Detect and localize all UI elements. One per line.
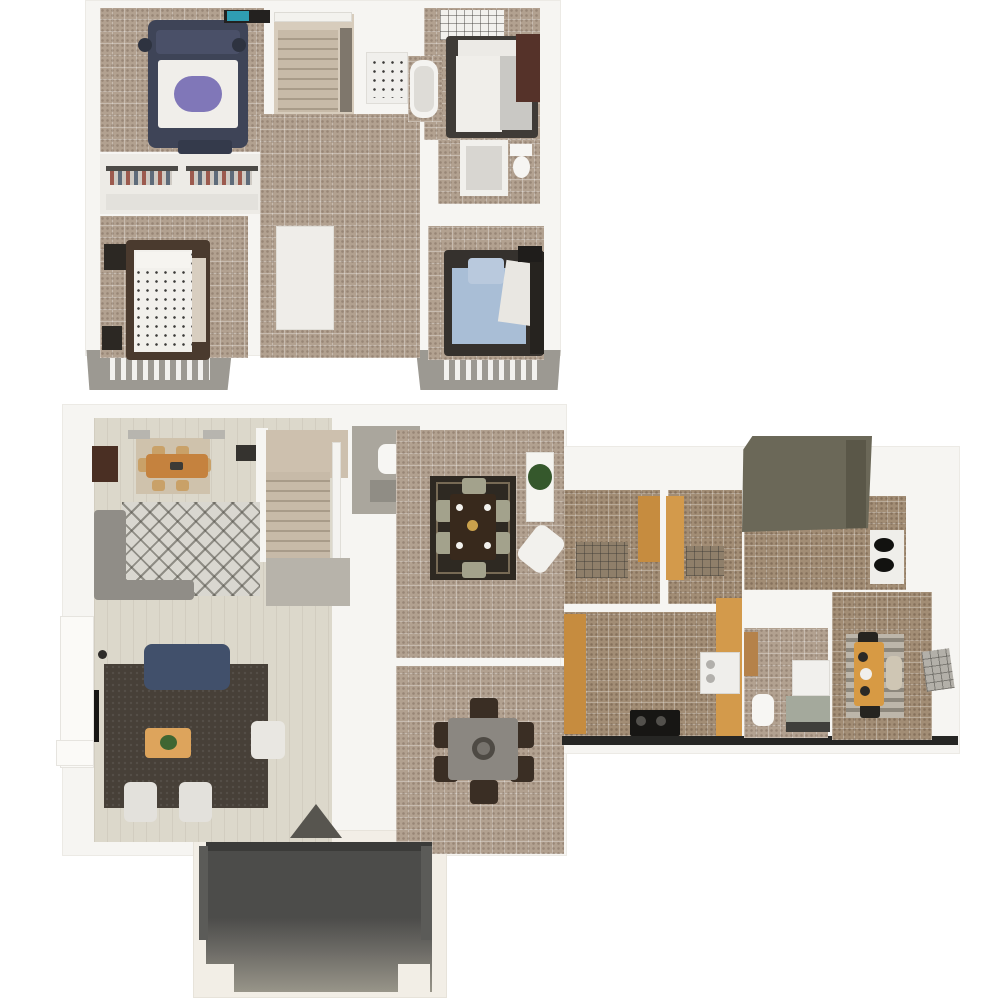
- patio-table-ring-inner: [477, 742, 490, 755]
- master-bed-bench: [178, 140, 232, 154]
- drape-right: [203, 430, 225, 439]
- dining-chair-right-2: [494, 532, 510, 554]
- nook-chair-4: [176, 480, 189, 491]
- wardrobe-2: [666, 496, 684, 580]
- annex-room1-rug: [576, 542, 628, 578]
- master-side-table-right: [232, 38, 246, 52]
- master-bed-pillows: [156, 30, 240, 54]
- armchair-right: [251, 721, 285, 759]
- left-deck-step: [56, 740, 94, 766]
- annex-chair-bottom: [860, 704, 880, 718]
- dining-chair-top: [462, 478, 486, 494]
- stove-coil-2: [706, 674, 715, 683]
- nightstand-top: [104, 244, 126, 270]
- kitchen-counter-left: [564, 614, 586, 734]
- cooktop-burner-2: [656, 716, 666, 726]
- plate-3: [456, 542, 463, 549]
- room3-pot-1: [874, 538, 894, 552]
- blue-bed-headboard: [530, 252, 544, 354]
- floorplan-canvas: [0, 0, 989, 1000]
- master-side-table-left: [138, 38, 152, 52]
- doormat: [921, 648, 954, 692]
- bath-wood-cabinet: [744, 632, 758, 676]
- master-tv-screen: [227, 11, 249, 21]
- drape-left: [128, 430, 150, 439]
- nightstand-bottom: [102, 326, 122, 350]
- annex-toilet: [752, 694, 774, 726]
- kitchen-stove-white: [700, 652, 740, 694]
- annex-room2-rug: [686, 546, 724, 576]
- closet-shelf: [106, 194, 258, 210]
- wardrobe-1: [638, 496, 660, 562]
- polka-bed-side: [192, 258, 206, 342]
- annex-table-item-1: [858, 652, 868, 662]
- floor-lamp: [98, 650, 107, 659]
- garage-lintel: [206, 842, 432, 851]
- nook-chair-3: [152, 480, 165, 491]
- plate-4: [484, 542, 491, 549]
- stairwell-gap: [340, 28, 352, 112]
- hall-closet: [276, 226, 334, 330]
- toilet-bowl-upper: [513, 156, 530, 178]
- washer-front: [786, 722, 830, 732]
- bathtub-basin: [414, 66, 434, 112]
- brown-cabinet: [92, 446, 118, 482]
- annex-table-item-2: [860, 686, 870, 696]
- potted-plant: [528, 464, 552, 490]
- table-centerpiece: [467, 520, 478, 531]
- roof-patch-fold: [846, 440, 866, 528]
- navy-sofa: [144, 644, 230, 690]
- coffee-table-plant: [160, 735, 177, 750]
- dining-chair-right-1: [494, 500, 510, 522]
- staircase-main: [266, 472, 330, 558]
- garage-post-left: [206, 964, 234, 992]
- garage-jamb-left: [199, 846, 208, 940]
- armchair-bottom-1: [124, 782, 157, 822]
- patio-chair-bottom: [470, 780, 498, 804]
- understair-floor: [266, 558, 350, 606]
- stove-coil-1: [706, 660, 715, 669]
- armchair-bottom-2: [179, 782, 212, 822]
- dining-chair-bottom: [462, 562, 486, 578]
- topright-dresser: [516, 34, 540, 102]
- upper-eave-right-windows: [444, 358, 540, 380]
- blue-bed-nightstand: [518, 246, 542, 262]
- closet-clothes-left: [110, 171, 172, 185]
- toilet-tank-upper: [510, 144, 532, 156]
- nook-centerpiece: [170, 462, 183, 470]
- stair-railing-upper: [274, 12, 352, 22]
- bath-white-cabinet: [792, 660, 830, 696]
- plate-2: [484, 504, 491, 511]
- blue-bed-pillow: [468, 258, 504, 284]
- plate-1: [456, 504, 463, 511]
- shower-floor: [466, 146, 502, 190]
- upper-eave-left-windows: [110, 358, 210, 380]
- garage-post-right: [398, 964, 430, 992]
- room3-pot-2: [874, 558, 894, 572]
- annex-bench: [886, 656, 902, 690]
- annex-table-plate: [860, 668, 872, 680]
- polka-bed-pillow: [136, 252, 190, 268]
- closet-clothes-right: [190, 171, 252, 185]
- cooktop-burner-1: [636, 716, 646, 726]
- sectional-sofa-horizontal: [94, 580, 194, 600]
- topright-bed-duvet: [456, 56, 502, 132]
- staircase-upper: [278, 30, 338, 112]
- laundry-shelf-items: [370, 58, 404, 98]
- master-duvet-art: [174, 76, 222, 112]
- garage-jamb-right: [421, 846, 432, 940]
- stair-railing-main: [332, 442, 341, 560]
